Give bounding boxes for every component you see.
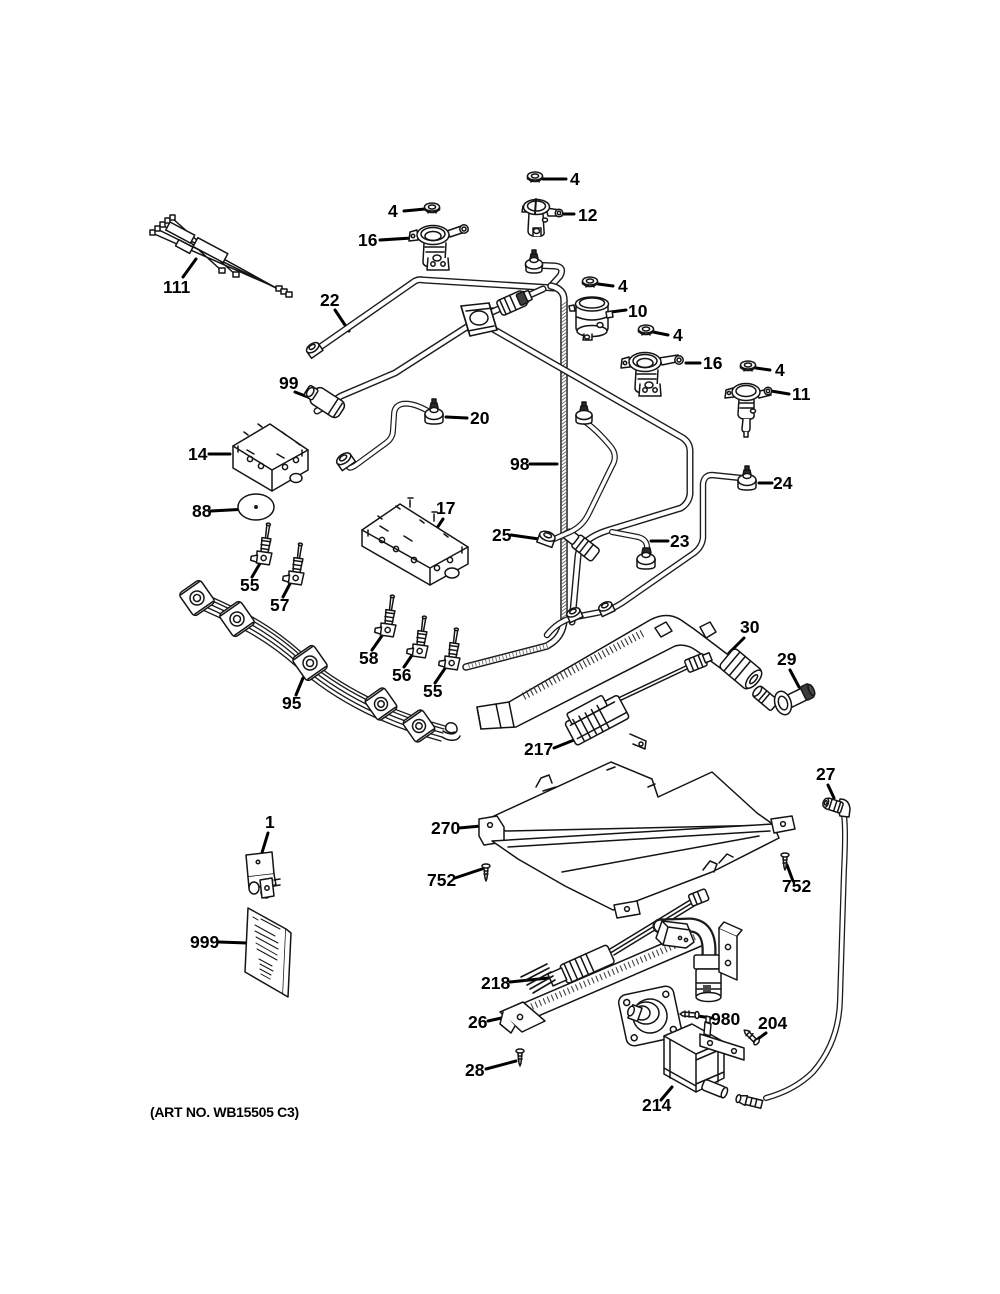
svg-text:16: 16 — [358, 230, 378, 250]
svg-text:14: 14 — [188, 444, 208, 464]
svg-text:95: 95 — [282, 693, 302, 713]
svg-text:99: 99 — [279, 373, 299, 393]
svg-text:217: 217 — [524, 739, 553, 759]
svg-text:24: 24 — [773, 473, 793, 493]
svg-text:999: 999 — [190, 932, 219, 952]
svg-text:20: 20 — [470, 408, 490, 428]
svg-text:88: 88 — [192, 501, 212, 521]
svg-text:10: 10 — [628, 301, 648, 321]
svg-text:111: 111 — [163, 277, 191, 297]
svg-text:27: 27 — [816, 764, 835, 784]
svg-text:55: 55 — [423, 681, 443, 701]
svg-text:22: 22 — [320, 290, 340, 310]
svg-text:270: 270 — [431, 818, 460, 838]
svg-text:752: 752 — [427, 870, 456, 890]
svg-text:30: 30 — [740, 617, 760, 637]
svg-text:58: 58 — [359, 648, 379, 668]
svg-text:16: 16 — [703, 353, 723, 373]
svg-text:1: 1 — [265, 812, 275, 832]
svg-text:980: 980 — [711, 1009, 740, 1029]
svg-text:214: 214 — [642, 1095, 671, 1115]
svg-text:4: 4 — [775, 360, 785, 380]
svg-text:98: 98 — [510, 454, 530, 474]
svg-text:(ART NO. WB15505 C3): (ART NO. WB15505 C3) — [150, 1104, 299, 1120]
svg-text:752: 752 — [782, 876, 811, 896]
svg-text:23: 23 — [670, 531, 690, 551]
svg-text:56: 56 — [392, 665, 412, 685]
svg-text:4: 4 — [570, 169, 580, 189]
svg-text:55: 55 — [240, 575, 260, 595]
svg-text:26: 26 — [468, 1012, 488, 1032]
svg-text:204: 204 — [758, 1013, 787, 1033]
svg-text:218: 218 — [481, 973, 510, 993]
svg-text:17: 17 — [436, 498, 455, 518]
svg-text:4: 4 — [388, 201, 398, 221]
svg-text:28: 28 — [465, 1060, 485, 1080]
svg-text:25: 25 — [492, 525, 512, 545]
svg-text:57: 57 — [270, 595, 289, 615]
svg-text:4: 4 — [673, 325, 683, 345]
svg-text:12: 12 — [578, 205, 598, 225]
svg-text:29: 29 — [777, 649, 797, 669]
svg-text:4: 4 — [618, 276, 628, 296]
svg-text:11: 11 — [792, 384, 811, 404]
